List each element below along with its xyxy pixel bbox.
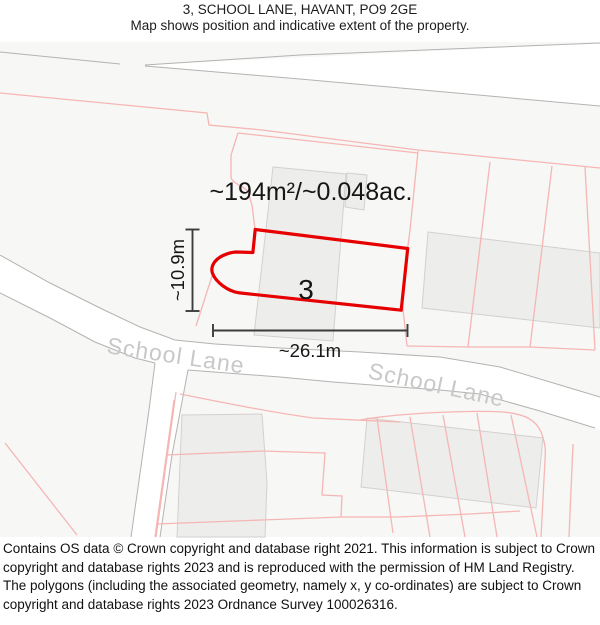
plot-number-label: 3 — [298, 274, 314, 305]
area-label: ~194m²/~0.048ac. — [210, 178, 413, 206]
copyright-footer: Contains OS data © Crown copyright and d… — [3, 540, 597, 614]
screenshot: 3, SCHOOL LANE, HAVANT, PO9 2GE Map show… — [0, 0, 600, 625]
building-southwest — [177, 414, 267, 537]
height-dimension-label: ~10.9m — [167, 239, 188, 301]
map-canvas: ~194m²/~0.048ac. 3 ~26.1m ~10.9m School … — [0, 0, 600, 625]
width-dimension-label: ~26.1m — [279, 340, 341, 361]
